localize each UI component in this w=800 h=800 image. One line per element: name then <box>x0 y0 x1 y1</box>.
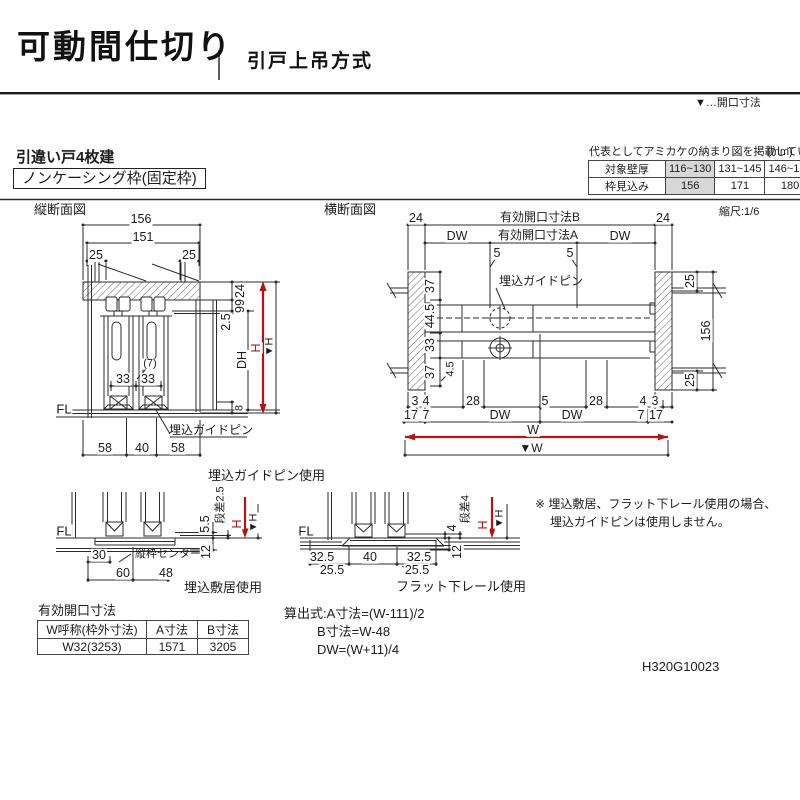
dim-25-left: 25 <box>88 249 104 262</box>
wall-table-cell: 156 <box>666 178 715 195</box>
dim-DH: DH <box>236 350 249 370</box>
wall-table-unit: (mm) <box>766 147 794 158</box>
wall-table-cell: 131~145 <box>715 161 765 178</box>
dim-48: 48 <box>158 567 174 580</box>
wall-thickness-table: 対象壁厚 116~130 131~145 146~160 枠見込み 156 17… <box>588 160 800 195</box>
dim-4-5: 4.5 <box>446 360 457 377</box>
step-2-5-label: 段差2.5 <box>216 485 227 524</box>
dim-DW2-left: DW <box>489 409 512 422</box>
dim-25-5-right: 25.5 <box>404 564 430 577</box>
dim-33-right: 33 <box>140 373 156 386</box>
dim-12-rail: 12 <box>451 544 464 560</box>
dim-60: 60 <box>115 567 131 580</box>
dim-4-right: 4 <box>639 395 648 408</box>
dim-5-5: 5.5 <box>199 514 212 533</box>
guide-pin-label: 埋込ガイドピン <box>168 424 254 436</box>
dim-DW2-right: DW <box>561 409 584 422</box>
dim-99: 99 <box>234 298 247 314</box>
hsection-title: 横断面図 <box>323 203 377 216</box>
dim-17-right: 17 <box>648 409 664 422</box>
dim-4-left: 4 <box>422 395 431 408</box>
dim-H-opening-rail: ▼H <box>495 509 506 530</box>
doc-code: H320G10023 <box>641 660 720 673</box>
pin-usage-caption: 埋込ガイドピン使用 <box>207 469 326 482</box>
dim-H-red-rail: H <box>477 519 490 530</box>
dim-24-right: 24 <box>655 212 671 225</box>
opening-b-label: 有効開口寸法B <box>499 211 581 223</box>
opening-size-table: W呼称(枠外寸法) A寸法 B寸法 W32(3253) 1571 3205 <box>37 620 249 655</box>
opening-dim-legend: ▼…開口寸法 <box>694 98 762 109</box>
dim-58-left: 58 <box>97 442 113 455</box>
step-4-label: 段差4 <box>461 494 472 524</box>
wall-table-cell: 枠見込み <box>589 178 666 195</box>
dim-H-red: H <box>250 342 263 353</box>
dim-17-left: 17 <box>403 409 419 422</box>
scale-label: 縮尺:1/6 <box>718 207 760 218</box>
dim-40: 40 <box>134 442 150 455</box>
opening-a-label: 有効開口寸法A <box>497 229 579 241</box>
opening-table-title: 有効開口寸法 <box>37 604 117 617</box>
dim-156: 156 <box>130 213 153 226</box>
dim-40-rail: 40 <box>362 551 378 564</box>
dim-28-left: 28 <box>465 395 481 408</box>
formula-a: 算出式:A寸法=(W-111)/2 <box>283 607 426 620</box>
wall-table-cell: 180 <box>765 178 800 195</box>
dim-151: 151 <box>132 231 155 244</box>
opening-table-header: W呼称(枠外寸法) <box>38 621 147 639</box>
wall-table-cell: 146~160 <box>765 161 800 178</box>
dim-3-right: 3 <box>651 395 660 408</box>
frame-type-label: ノンケーシング枠(固定枠) <box>13 168 206 189</box>
dim-W-opening: ▼W <box>518 442 543 454</box>
dim-30: 30 <box>91 549 107 562</box>
fl-label: FL <box>55 403 72 416</box>
dim-7-left: 7 <box>422 409 431 422</box>
dim-32-5-right: 32.5 <box>406 551 432 564</box>
horizontal-section-linework <box>387 225 726 457</box>
dim-8: 8 <box>235 404 246 412</box>
dim-4-rail: 4 <box>446 524 459 533</box>
dim-7-right: 7 <box>637 409 646 422</box>
opening-table-header: B寸法 <box>198 621 249 639</box>
dim-7-gap: (7) <box>142 359 157 370</box>
sill-caption: 埋込敷居使用 <box>183 581 263 594</box>
wall-table-cell: 116~130 <box>666 161 715 178</box>
dim-37-top: 37 <box>424 278 437 294</box>
dim-24: 24 <box>234 283 247 299</box>
wall-table-cell: 171 <box>715 178 765 195</box>
note-line2: 埋込ガイドピンは使用しません。 <box>549 516 731 528</box>
dim-2-5: 2.5 <box>220 312 233 331</box>
dim-24-left: 24 <box>408 212 424 225</box>
fl-label-rail: FL <box>297 525 314 538</box>
page-subtitle: 引戸上吊方式 <box>246 52 374 71</box>
formula-dw: DW=(W+11)/4 <box>316 643 400 656</box>
dim-156-frame: 156 <box>700 320 713 343</box>
dim-32-5-left: 32.5 <box>309 551 335 564</box>
dim-58-right: 58 <box>170 442 186 455</box>
opening-table-cell: W32(3253) <box>38 639 147 655</box>
vsection-title: 縦断面図 <box>33 203 87 216</box>
dim-28-right: 28 <box>588 395 604 408</box>
dim-25-bottom: 25 <box>684 372 697 388</box>
dim-25-5-left: 25.5 <box>319 564 345 577</box>
dim-5-left: 5 <box>493 247 502 260</box>
dim-37-bottom: 37 <box>424 364 437 380</box>
guide-pin-label: 埋込ガイドピン <box>498 275 584 287</box>
dim-3-left: 3 <box>411 395 420 408</box>
jamb-center-label: 縦枠センター <box>134 549 202 560</box>
formula-b: B寸法=W-48 <box>316 625 391 638</box>
wall-table-cell: 対象壁厚 <box>589 161 666 178</box>
dim-25-right: 25 <box>181 249 197 262</box>
dim-5-right: 5 <box>566 247 575 260</box>
dim-DW-right: DW <box>609 230 632 243</box>
opening-table-header: A寸法 <box>147 621 198 639</box>
note-line1: ※ 埋込敷居、フラット下レール使用の場合、 <box>534 498 777 510</box>
opening-table-cell: 3205 <box>198 639 249 655</box>
catalog-page: 可動間仕切り 引戸上吊方式 ▼…開口寸法 引違い戸4枚建 ノンケーシング枠(固定… <box>0 0 800 800</box>
door-type-label: 引違い戸4枚建 <box>15 150 115 165</box>
rail-caption: フラット下レール使用 <box>395 580 527 593</box>
dim-25-top: 25 <box>684 273 697 289</box>
fl-label-sill: FL <box>55 525 72 538</box>
dim-H-opening: ▼H <box>265 337 276 358</box>
dim-H-opening-sill: ▼H <box>249 513 260 534</box>
drawing-linework <box>0 0 800 800</box>
dim-44-5: 44.5 <box>424 303 437 329</box>
dim-5-center: 5 <box>541 395 550 408</box>
dim-H-red-sill: H <box>231 518 244 529</box>
dim-DW-left: DW <box>446 230 469 243</box>
dim-33-left: 33 <box>115 373 131 386</box>
dim-W: W <box>526 424 540 437</box>
dim-33: 33 <box>424 337 437 353</box>
page-title: 可動間仕切り <box>16 30 234 63</box>
opening-table-cell: 1571 <box>147 639 198 655</box>
